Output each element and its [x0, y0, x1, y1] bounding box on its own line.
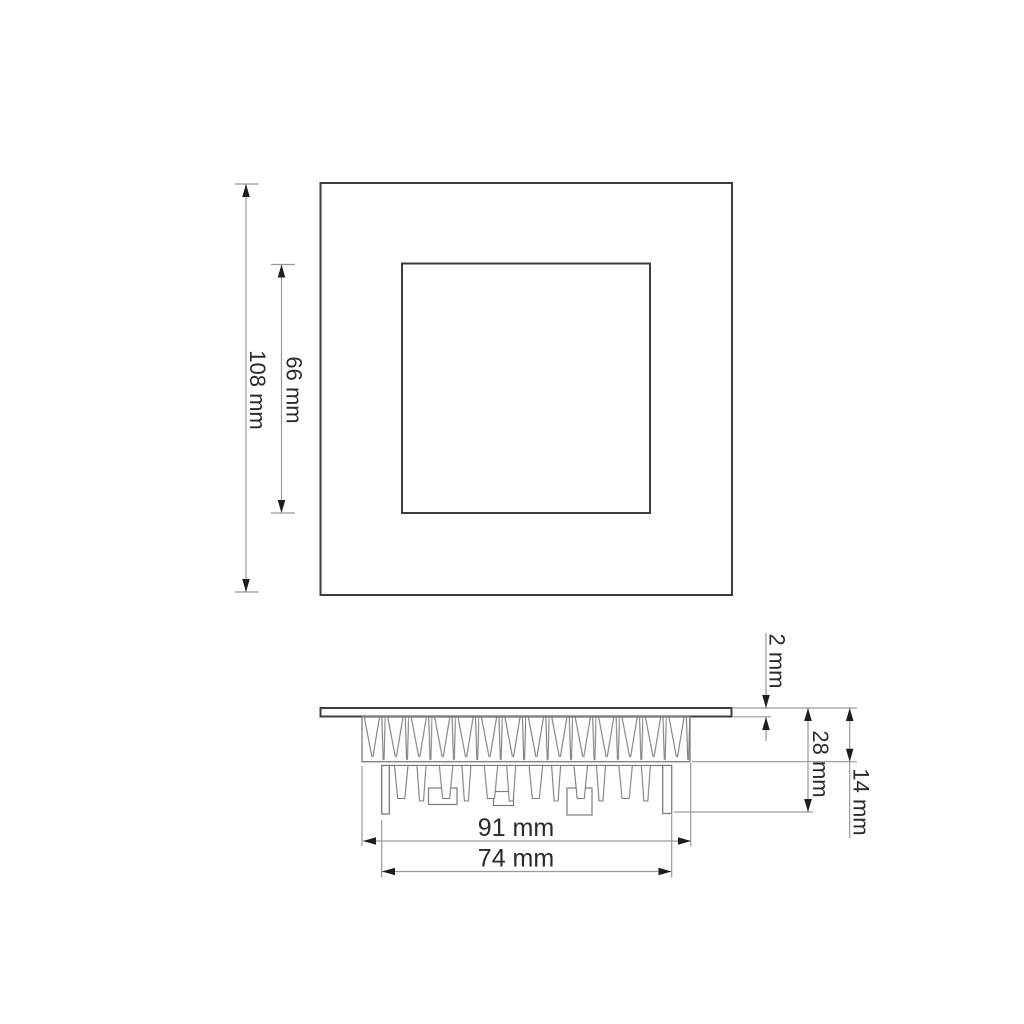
dim-74-arrow-right-icon: [659, 868, 672, 876]
support-leg-right: [663, 766, 672, 814]
dim-14-arrow-down-icon: [846, 749, 854, 762]
dim-14-arrow-up-icon: [846, 708, 854, 721]
dim-66-arrow-up-icon: [278, 265, 286, 278]
dimension-drawing-svg: 108 mm 66 mm: [0, 0, 1024, 1024]
side-view: 2 mm 28 mm 14 mm 91 mm 74 mm: [321, 633, 874, 878]
dimension-overall-depth: 28 mm: [804, 708, 833, 812]
dim-74-arrow-left-icon: [382, 868, 395, 876]
dim-28-label: 28 mm: [808, 730, 833, 797]
dim-91-label: 91 mm: [478, 814, 554, 842]
top-view: 108 mm 66 mm: [235, 183, 732, 595]
support-leg-left: [382, 766, 390, 815]
dimension-heatsink-width: 91 mm: [363, 814, 691, 845]
dimension-outer-height: 108 mm: [235, 184, 270, 592]
dim-74-label: 74 mm: [478, 845, 554, 873]
dim-66-arrow-down-icon: [278, 500, 286, 513]
dim-108-label: 108 mm: [245, 350, 270, 429]
dimension-plate-thickness: 2 mm: [762, 633, 789, 741]
dim-2-arrow-up-icon: [762, 717, 770, 730]
dimension-body-width: 74 mm: [382, 845, 672, 876]
heatsink-lower-row-fins: [392, 766, 661, 803]
dim-91-arrow-left-icon: [363, 837, 376, 845]
dim-2-arrow-down-icon: [762, 695, 770, 708]
inner-square: [402, 264, 650, 514]
dim-28-arrow-down-icon: [804, 799, 812, 812]
dim-108-arrow-down-icon: [242, 579, 250, 592]
dimension-inner-height: 66 mm: [271, 265, 307, 514]
heatsink-upper-row-fins: [362, 717, 690, 762]
dim-28-arrow-up-icon: [804, 708, 812, 721]
dim-14-label: 14 mm: [849, 768, 874, 835]
dim-2-label: 2 mm: [765, 634, 790, 689]
dim-108-arrow-up-icon: [242, 184, 250, 197]
dimension-recess-depth: 14 mm: [846, 708, 874, 838]
dim-91-arrow-right-icon: [678, 837, 691, 845]
dim-66-label: 66 mm: [282, 356, 307, 423]
technical-drawing-page: 108 mm 66 mm: [0, 0, 1024, 1024]
face-plate: [321, 708, 732, 717]
